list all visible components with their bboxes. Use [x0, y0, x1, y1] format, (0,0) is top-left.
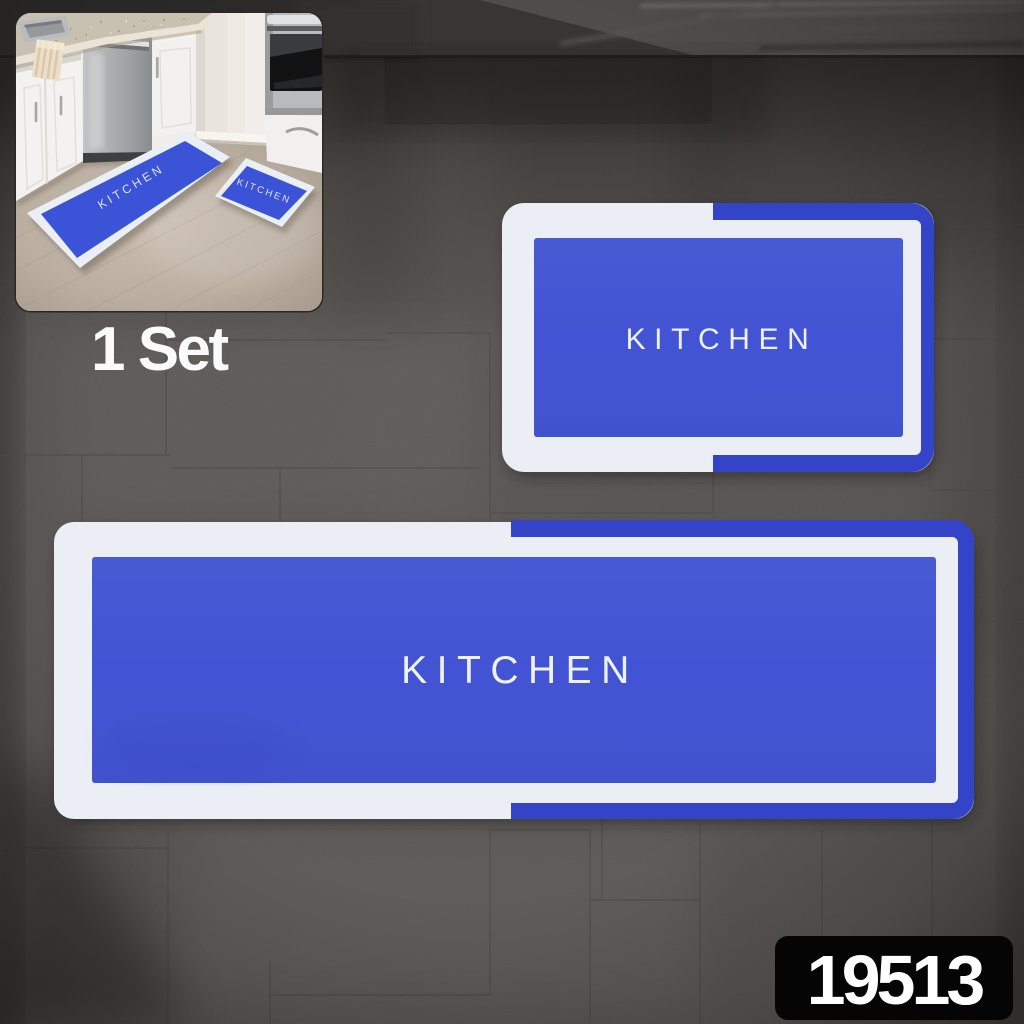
svg-text:19513: 19513 [807, 941, 984, 1019]
svg-text:1 Set: 1 Set [91, 315, 229, 384]
svg-text:KITCHEN: KITCHEN [626, 323, 818, 356]
svg-text:KITCHEN: KITCHEN [401, 649, 639, 692]
